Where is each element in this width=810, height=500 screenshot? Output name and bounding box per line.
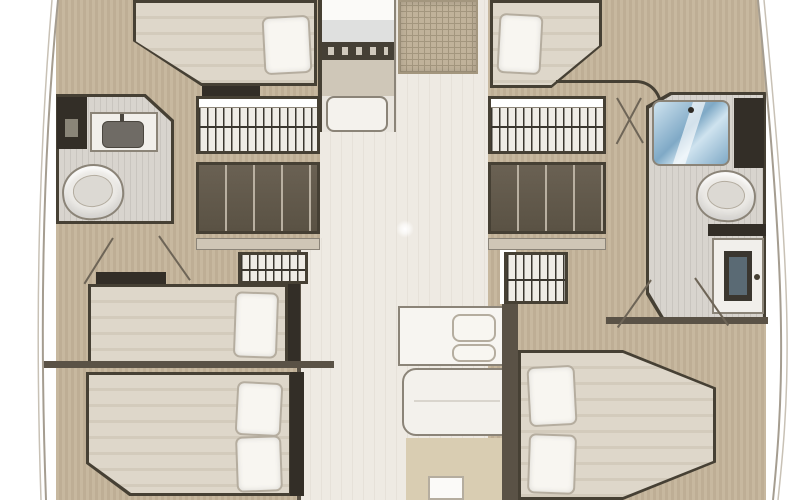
shower-drain-icon <box>688 107 694 113</box>
port-bulkhead <box>38 361 334 368</box>
port-headboard-shelf <box>96 272 166 284</box>
starboard-shelf <box>488 238 606 250</box>
starboard-forward-wardrobe <box>488 96 606 154</box>
catamaran-floor-plan <box>0 0 810 500</box>
port-forward-wardrobe <box>196 96 320 154</box>
stove-knobs-icon <box>328 47 388 55</box>
galley-sink-module <box>326 96 388 132</box>
salon-table <box>402 368 510 436</box>
port-sink-basin <box>102 121 144 148</box>
companionway-step <box>428 476 464 500</box>
starboard-shelved-locker <box>488 162 606 234</box>
starboard-counter <box>708 224 766 236</box>
vanity-door-panel <box>729 257 747 295</box>
starboard-bulkhead <box>606 317 768 324</box>
port-bathroom-cabinet <box>57 97 87 149</box>
settee-cushion-1 <box>452 314 496 342</box>
starboard-mid-wardrobe <box>504 252 568 304</box>
salon-settee <box>398 306 504 366</box>
port-forward-pillow <box>262 15 313 75</box>
starboard-vanity-cabinet <box>712 238 764 314</box>
port-sink-vanity <box>90 112 158 152</box>
salon-starboard-wall <box>502 304 518 500</box>
port-mid-wardrobe <box>238 252 308 284</box>
deck-hatch-mat <box>398 0 478 74</box>
shower-stall <box>652 100 730 166</box>
vanity-door <box>724 251 752 301</box>
port-aft-sideboard <box>290 372 304 496</box>
port-sink-faucet-icon <box>120 114 124 121</box>
galley-counter-mid <box>322 20 394 42</box>
vanity-handle-icon <box>754 274 760 280</box>
galley-counter-top <box>322 0 394 20</box>
starboard-aft-pillow-2 <box>527 433 577 495</box>
starboard-aft-pillow-1 <box>526 365 577 427</box>
salon-table-seam <box>414 400 500 402</box>
port-mid-pillow <box>233 291 279 358</box>
port-mid-sideboard <box>288 284 300 364</box>
port-shelf <box>196 238 320 250</box>
port-bathroom-mirror <box>65 119 78 137</box>
starboard-bathroom-cabinet <box>734 98 764 168</box>
starboard-forward-pillow <box>496 13 543 75</box>
port-shelved-locker <box>196 162 320 234</box>
galley-stove <box>322 42 394 60</box>
settee-cushion-2 <box>452 344 496 362</box>
port-aft-pillow-2 <box>235 435 283 493</box>
galley-body <box>322 60 394 96</box>
port-aft-pillow-1 <box>235 381 284 437</box>
ceiling-light-icon <box>396 220 414 238</box>
